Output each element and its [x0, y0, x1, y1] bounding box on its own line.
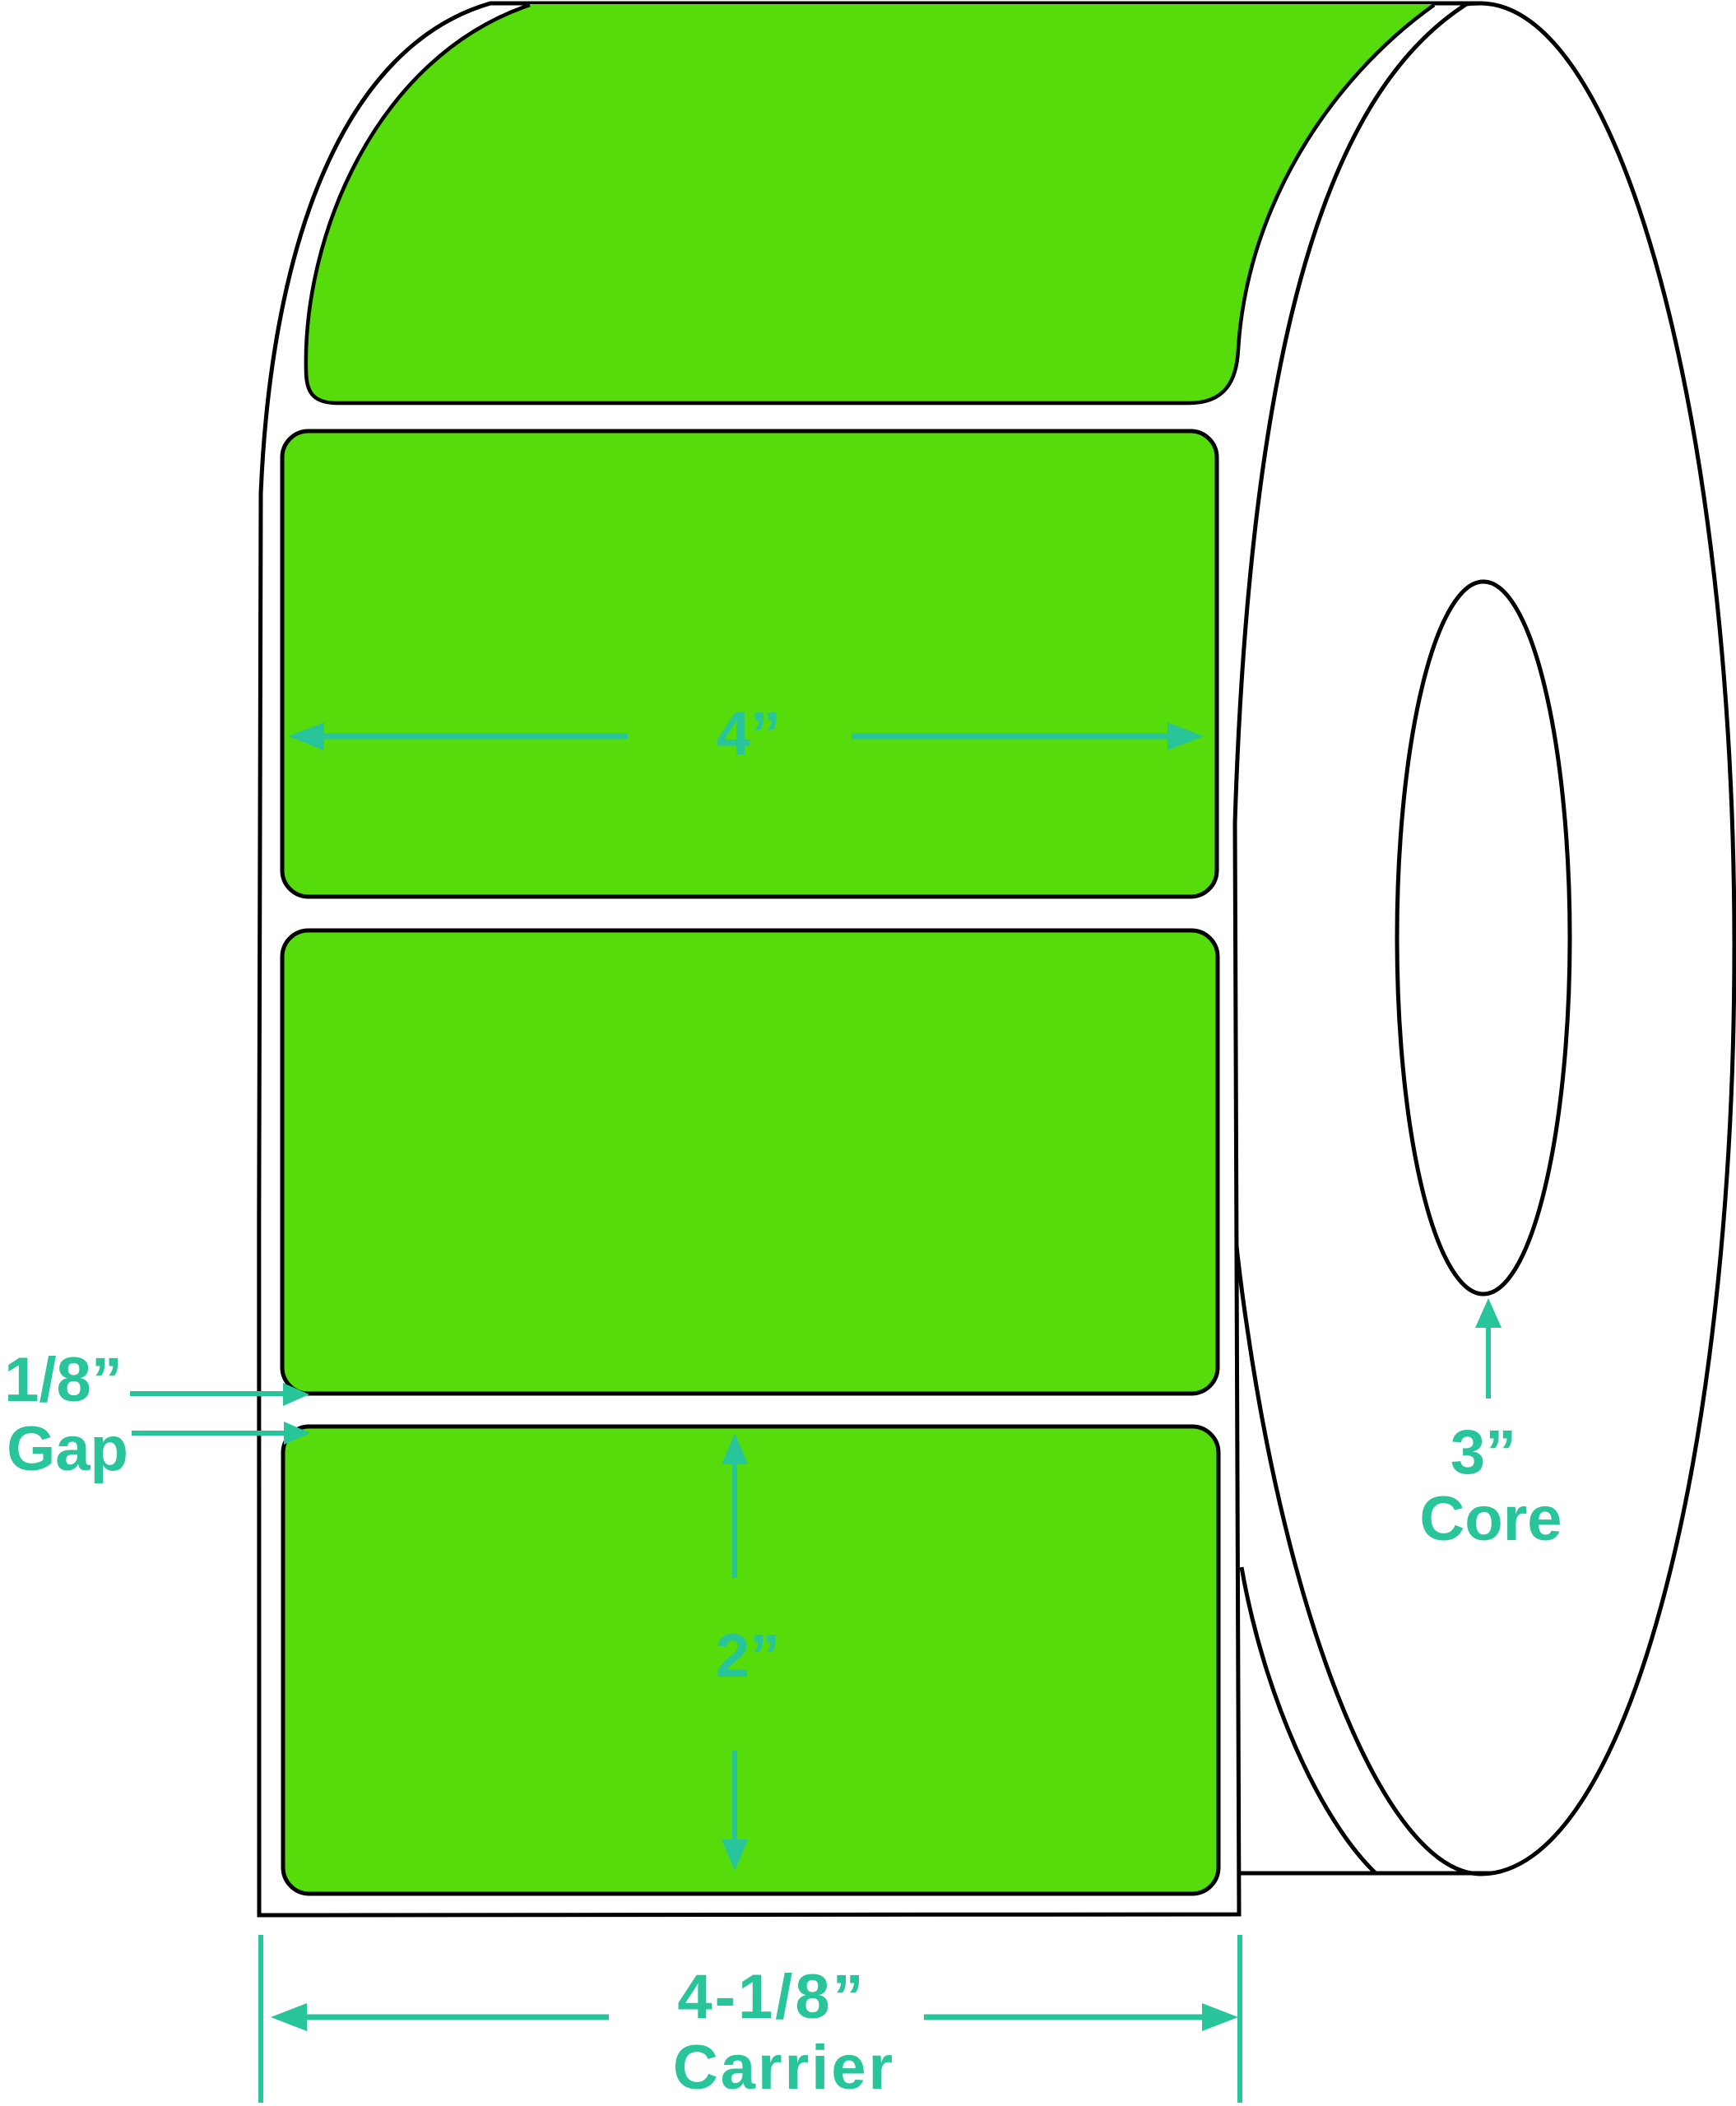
svg-text:1/8”: 1/8” — [4, 1345, 123, 1415]
svg-text:3”: 3” — [1451, 1417, 1516, 1487]
svg-text:2”: 2” — [716, 1621, 780, 1690]
svg-text:Carrier: Carrier — [673, 2033, 895, 2103]
svg-text:4-1/8”: 4-1/8” — [677, 1962, 866, 2032]
svg-text:4”: 4” — [717, 699, 781, 768]
svg-text:Gap: Gap — [7, 1414, 128, 1484]
svg-text:Core: Core — [1419, 1484, 1562, 1554]
